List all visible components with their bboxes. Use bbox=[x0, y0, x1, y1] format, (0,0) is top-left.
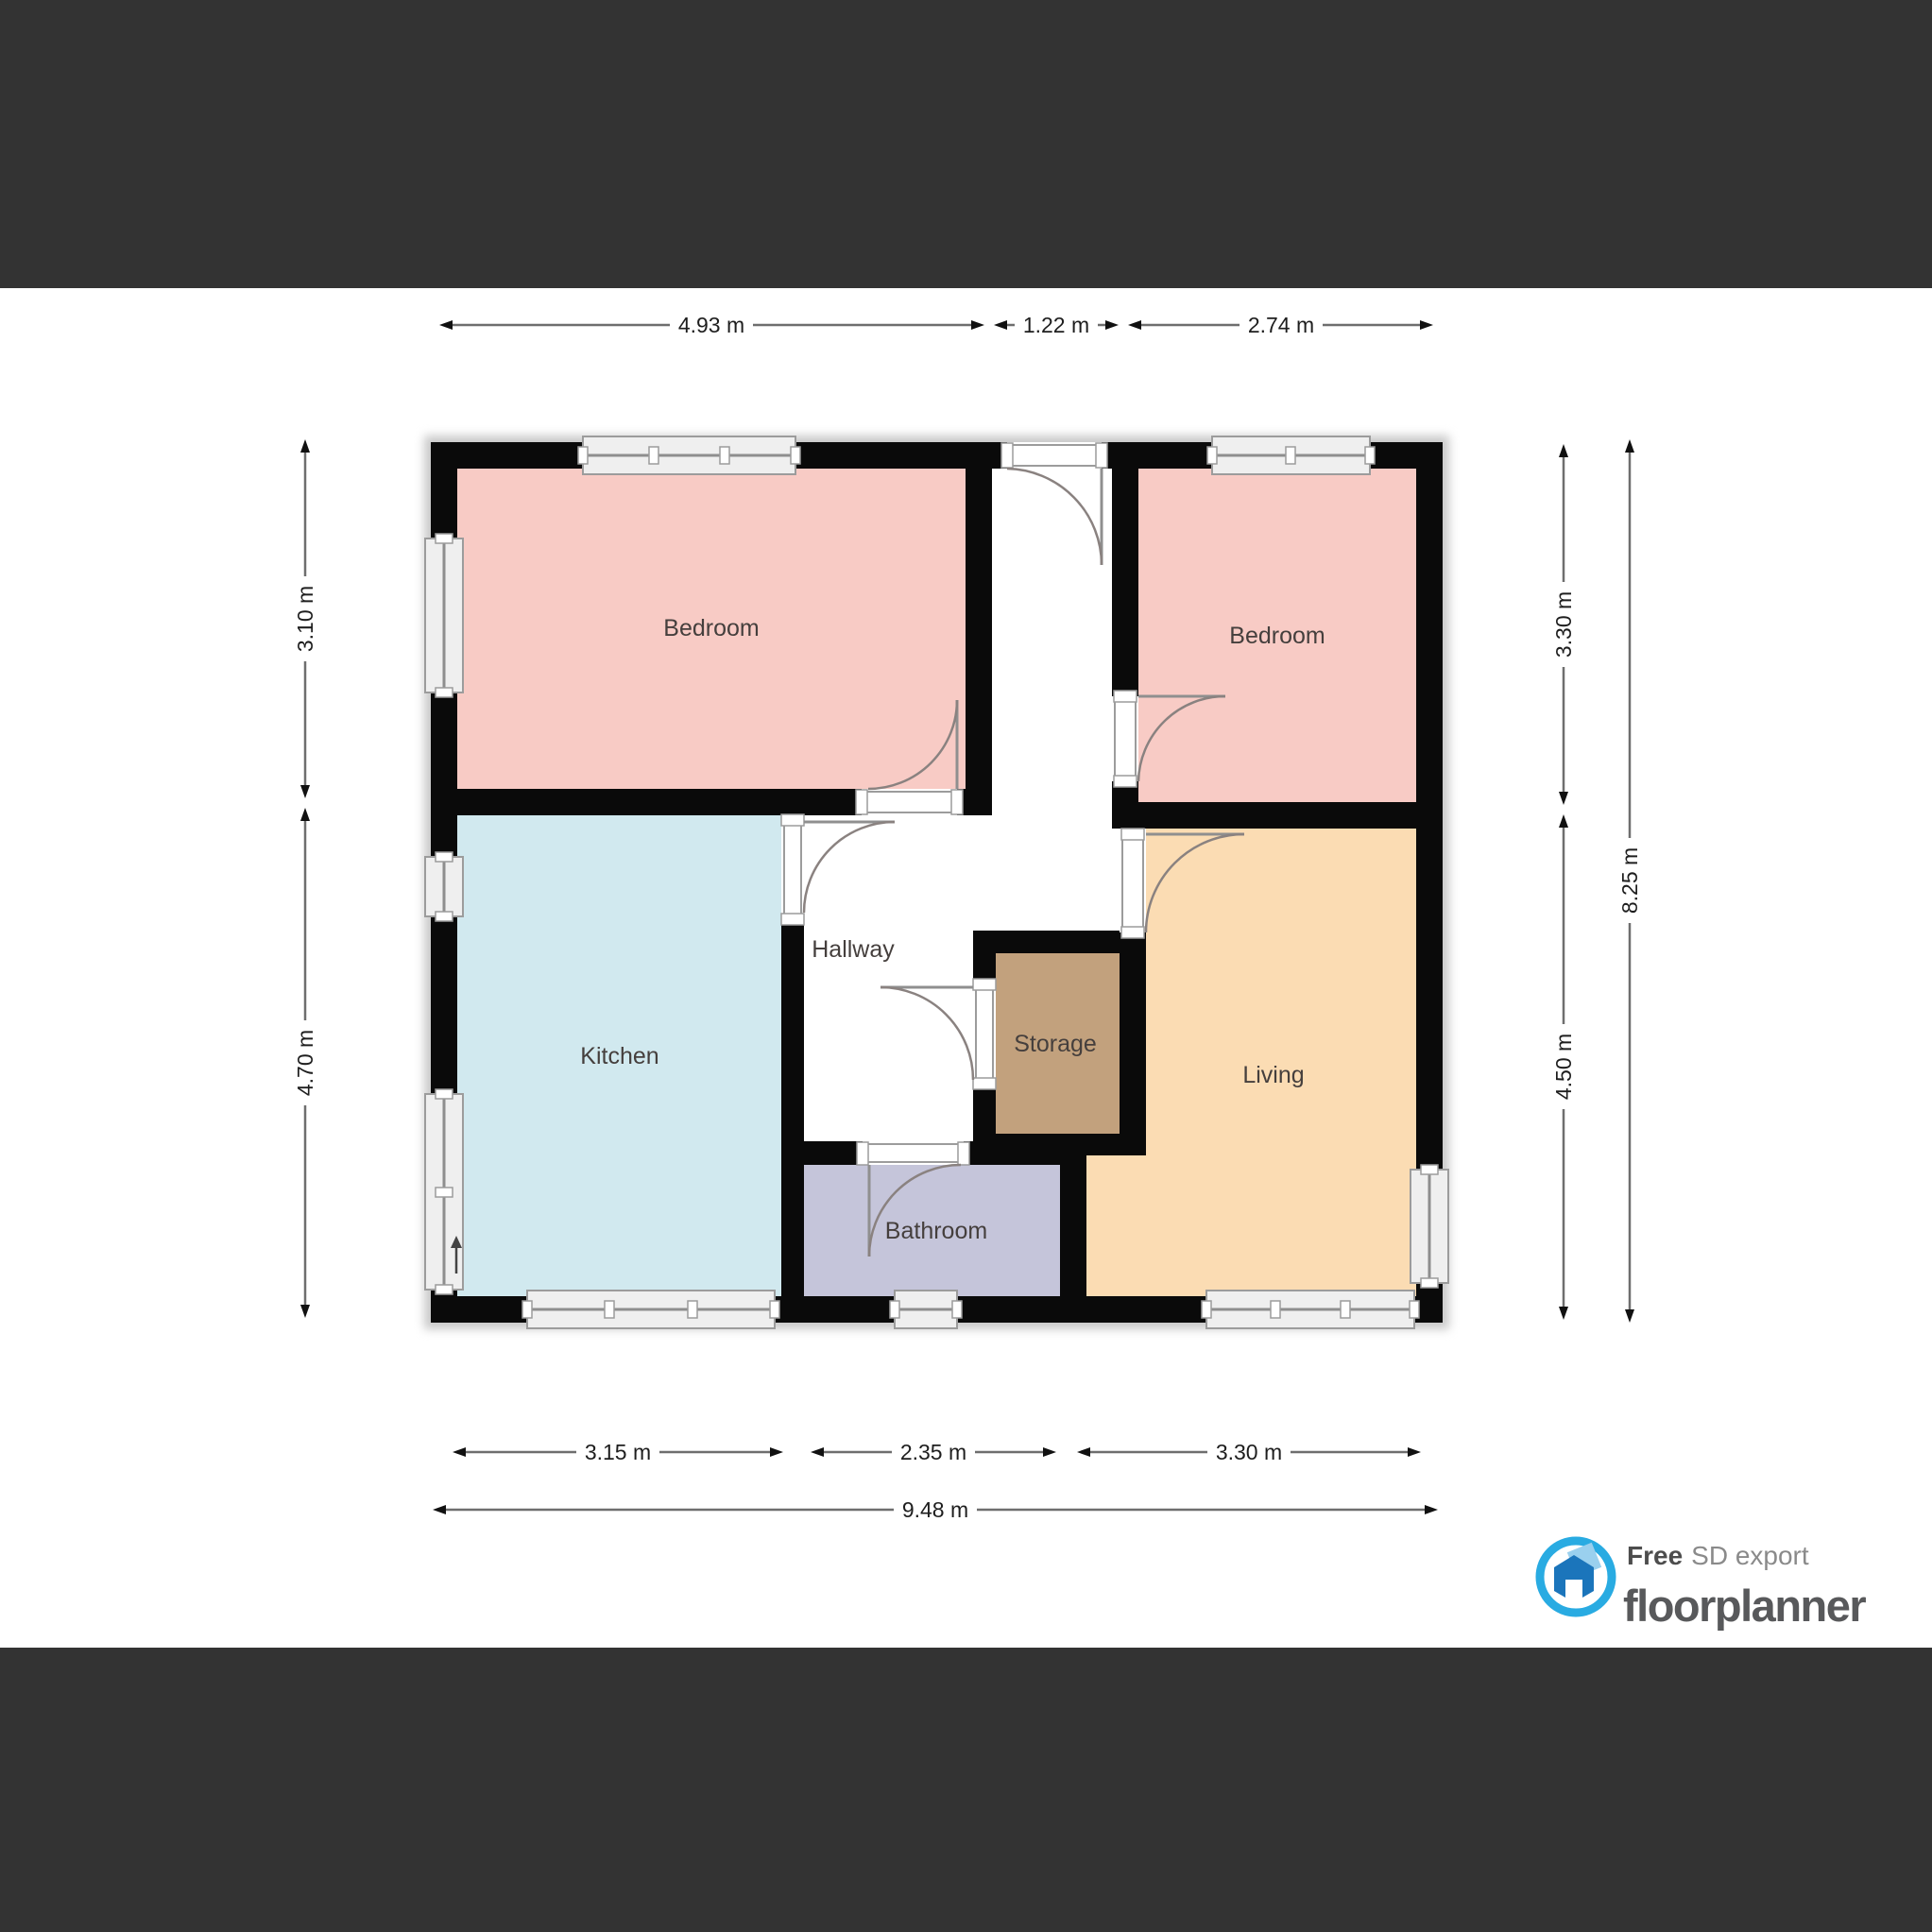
room-label-bedroom-1: Bedroom bbox=[663, 615, 759, 641]
svg-text:3.30 m: 3.30 m bbox=[1551, 591, 1576, 658]
svg-text:9.48 m: 9.48 m bbox=[902, 1497, 968, 1522]
room-label-living: Living bbox=[1242, 1062, 1304, 1088]
svg-text:4.50 m: 4.50 m bbox=[1551, 1034, 1576, 1100]
svg-text:4.70 m: 4.70 m bbox=[293, 1030, 317, 1096]
wall-segment bbox=[966, 442, 992, 815]
room-label-kitchen: Kitchen bbox=[580, 1043, 658, 1069]
window-bathroom-bottom bbox=[890, 1291, 962, 1328]
window-living-bottom bbox=[1202, 1291, 1419, 1328]
window-kitchen-left-small bbox=[425, 852, 463, 921]
room-label-bathroom: Bathroom bbox=[885, 1218, 987, 1244]
svg-text:1.22 m: 1.22 m bbox=[1023, 313, 1089, 337]
logo-free-label: Free bbox=[1627, 1541, 1683, 1570]
svg-text:3.10 m: 3.10 m bbox=[293, 586, 317, 652]
room-label-bedroom-2: Bedroom bbox=[1229, 623, 1325, 649]
wall-segment bbox=[1120, 932, 1146, 1155]
svg-text:8.25 m: 8.25 m bbox=[1617, 847, 1642, 914]
svg-text:2.74 m: 2.74 m bbox=[1248, 313, 1314, 337]
window-living-right bbox=[1411, 1165, 1448, 1288]
floorplan-export-canvas: Bedroom Bedroom Kitchen Hallway Storage … bbox=[0, 0, 1932, 1932]
wall-segment bbox=[1112, 442, 1138, 696]
room-label-hallway: Hallway bbox=[812, 936, 895, 963]
wall-segment bbox=[1112, 802, 1443, 829]
window-bedroom1-top bbox=[578, 436, 800, 474]
svg-text:3.30 m: 3.30 m bbox=[1216, 1440, 1282, 1464]
window-bedroom2-top bbox=[1207, 436, 1375, 474]
svg-text:2.35 m: 2.35 m bbox=[900, 1440, 966, 1464]
top-bar bbox=[0, 0, 1932, 288]
floorplan-export-page: Bedroom Bedroom Kitchen Hallway Storage … bbox=[0, 0, 1932, 1932]
wall-segment bbox=[781, 1141, 863, 1165]
logo-export-label: SD export bbox=[1691, 1541, 1809, 1570]
svg-text:4.93 m: 4.93 m bbox=[678, 313, 744, 337]
wall-segment bbox=[781, 919, 804, 1296]
logo-tagline: FreeSD export bbox=[1627, 1541, 1809, 1570]
window-kitchen-bottom bbox=[522, 1291, 779, 1328]
logo-wordmark: floorplanner bbox=[1623, 1581, 1866, 1631]
wall-segment bbox=[1060, 1141, 1086, 1296]
svg-text:3.15 m: 3.15 m bbox=[585, 1440, 651, 1464]
window-bedroom1-left bbox=[425, 534, 463, 697]
bottom-bar bbox=[0, 1648, 1932, 1932]
room-label-storage: Storage bbox=[1014, 1031, 1097, 1057]
